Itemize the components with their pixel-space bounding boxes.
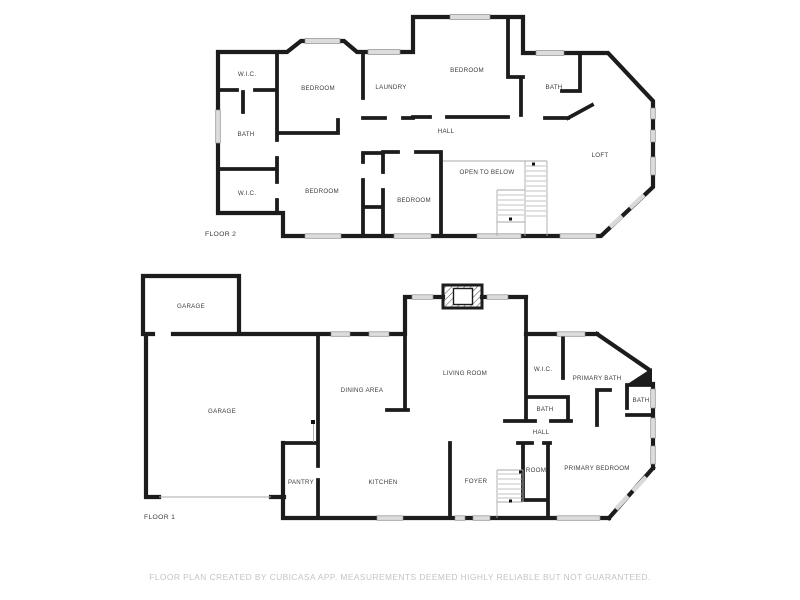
floor1-windows (331, 295, 655, 521)
window (616, 496, 628, 509)
floor-plan-svg: W.I.C. BEDROOM LAUNDRY BEDROOM BATH HALL… (0, 0, 800, 600)
window (377, 516, 403, 521)
room-label-wic: W.I.C. (534, 366, 552, 373)
door-marker (311, 420, 315, 424)
room-label-living-room: LIVING ROOM (443, 370, 487, 377)
room-label-loft: LOFT (592, 152, 609, 159)
window (477, 234, 521, 239)
floor1-title: FLOOR 1 (144, 514, 175, 521)
room-label-open-to-below: OPEN TO BELOW (460, 169, 515, 176)
window (651, 157, 656, 175)
room-label-laundry: LAUNDRY (375, 84, 406, 91)
window (369, 332, 389, 337)
window (394, 234, 431, 239)
room-label-foyer: FOYER (465, 478, 488, 485)
footer-disclaimer: FLOOR PLAN CREATED BY CUBICASA APP. MEAS… (149, 572, 651, 582)
stair-arrow-dot (509, 218, 512, 221)
room-label-bath-w: BATH (237, 131, 254, 138)
window (651, 108, 656, 119)
window (305, 234, 341, 239)
floor-plan-page: W.I.C. BEDROOM LAUNDRY BEDROOM BATH HALL… (0, 0, 800, 600)
room-label-pantry: PANTRY (288, 479, 314, 486)
floor2-title: FLOOR 2 (205, 231, 236, 238)
floor1-room-labels: GARAGE GARAGE DINING AREA LIVING ROOM W.… (177, 303, 650, 486)
window (450, 15, 490, 20)
room-label-primary-bath: PRIMARY BATH (573, 375, 622, 382)
floor1-outer-walls (143, 276, 653, 518)
window (557, 516, 600, 521)
room-label-bath-corner: BATH (632, 397, 649, 404)
room-label-bedroom-n: BEDROOM (450, 67, 484, 74)
entry-door (473, 516, 490, 521)
window (630, 195, 644, 208)
stair-arrow-dot (509, 500, 512, 503)
floor2-windows (216, 15, 656, 239)
room-label-hall: HALL (533, 429, 550, 436)
window (487, 295, 508, 300)
floor1-plan: GARAGE GARAGE DINING AREA LIVING ROOM W.… (143, 276, 655, 521)
window (610, 216, 622, 227)
window (633, 477, 646, 491)
window (305, 39, 340, 44)
room-label-wic-upper: W.I.C. (238, 71, 256, 78)
window (216, 110, 221, 143)
window (651, 418, 656, 438)
window (557, 332, 585, 337)
window (651, 130, 656, 142)
floor1-stairs (497, 470, 523, 518)
floor2-room-labels: W.I.C. BEDROOM LAUNDRY BEDROOM BATH HALL… (237, 67, 608, 204)
room-label-wic-lower: W.I.C. (238, 190, 256, 197)
room-label-bedroom-sw: BEDROOM (305, 188, 339, 195)
window (536, 51, 564, 56)
fireplace (443, 285, 482, 308)
room-label-bath-e: BATH (545, 84, 562, 91)
room-label-hall: HALL (438, 128, 455, 135)
room-label-room: ROOM (526, 467, 546, 474)
window (412, 295, 433, 300)
entry-sidelight (455, 516, 465, 521)
room-label-primary-bedroom: PRIMARY BEDROOM (564, 465, 629, 472)
room-label-kitchen: KITCHEN (369, 479, 398, 486)
room-label-dining-area: DINING AREA (341, 387, 384, 394)
window (560, 234, 596, 239)
room-label-bedroom-nw: BEDROOM (301, 85, 335, 92)
window (651, 446, 656, 464)
floor2-outer-walls (218, 17, 653, 236)
room-label-garage-main: GARAGE (208, 408, 236, 415)
room-label-bath-hall: BATH (536, 406, 553, 413)
stair-arrow-dot (519, 471, 522, 474)
window (651, 389, 656, 408)
room-label-bedroom-s: BEDROOM (397, 197, 431, 204)
fireplace-box (454, 289, 473, 305)
room-label-garage-upper: GARAGE (177, 303, 205, 310)
stair-arrow-dot (532, 163, 535, 166)
window (331, 332, 350, 337)
floor2-plan: W.I.C. BEDROOM LAUNDRY BEDROOM BATH HALL… (205, 15, 655, 239)
window (368, 50, 400, 55)
